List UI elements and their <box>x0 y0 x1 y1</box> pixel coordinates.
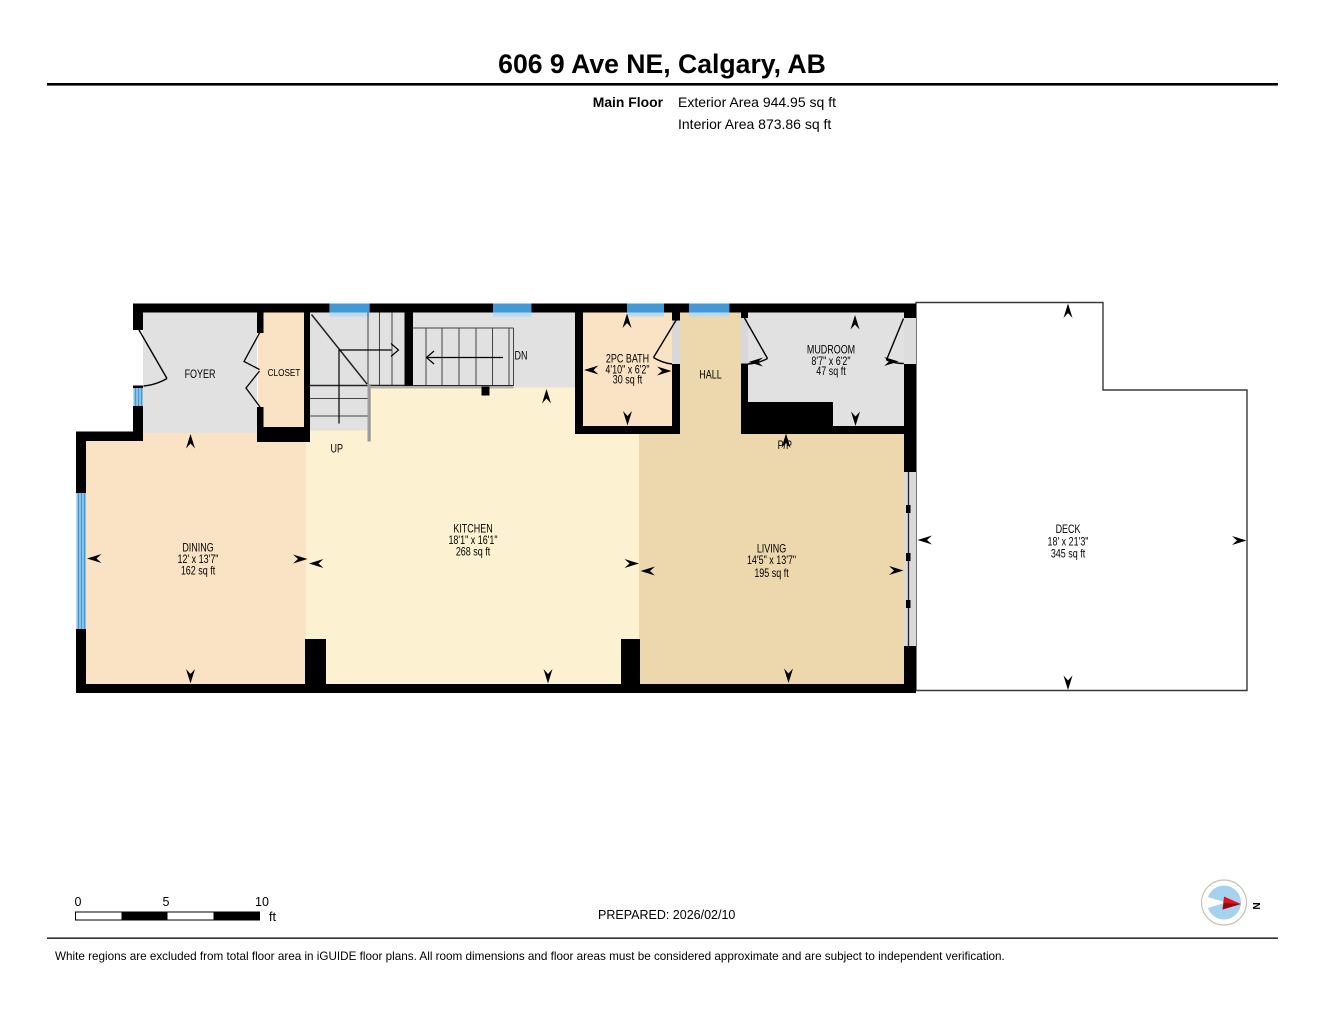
svg-text:0: 0 <box>75 895 82 909</box>
svg-text:268 sq ft: 268 sq ft <box>456 547 490 559</box>
svg-text:Exterior Area 944.95 sq ft: Exterior Area 944.95 sq ft <box>678 94 836 110</box>
svg-text:30 sq ft: 30 sq ft <box>613 375 642 387</box>
svg-text:CLOSET: CLOSET <box>268 366 301 378</box>
svg-text:14'5" x 13'7": 14'5" x 13'7" <box>747 555 796 567</box>
svg-text:18' x 21'3": 18' x 21'3" <box>1048 537 1089 549</box>
svg-text:Interior Area 873.86 sq ft: Interior Area 873.86 sq ft <box>678 116 831 132</box>
svg-text:ft: ft <box>269 910 276 924</box>
svg-text:18'1" x 16'1": 18'1" x 16'1" <box>448 535 497 547</box>
svg-text:5: 5 <box>163 895 170 909</box>
svg-text:Main Floor: Main Floor <box>593 94 664 110</box>
svg-text:12' x 13'7": 12' x 13'7" <box>178 554 219 566</box>
svg-text:162 sq ft: 162 sq ft <box>181 566 215 578</box>
svg-text:47 sq ft: 47 sq ft <box>816 366 845 378</box>
svg-text:PREPARED: 2026/02/10: PREPARED: 2026/02/10 <box>598 908 735 922</box>
svg-text:DINING: DINING <box>182 543 213 555</box>
svg-text:P/P: P/P <box>778 440 793 452</box>
svg-text:KITCHEN: KITCHEN <box>453 524 492 536</box>
svg-text:DN: DN <box>515 351 528 363</box>
svg-text:MUDROOM: MUDROOM <box>807 345 855 357</box>
svg-text:DECK: DECK <box>1056 524 1081 536</box>
svg-text:345 sq ft: 345 sq ft <box>1051 549 1085 561</box>
svg-text:606 9 Ave NE, Calgary, AB: 606 9 Ave NE, Calgary, AB <box>498 49 826 79</box>
svg-text:N: N <box>1250 902 1261 909</box>
svg-text:195 sq ft: 195 sq ft <box>754 568 788 580</box>
svg-text:UP: UP <box>330 444 343 456</box>
svg-text:10: 10 <box>255 895 269 909</box>
svg-text:LIVING: LIVING <box>757 544 786 556</box>
svg-text:White regions are excluded fro: White regions are excluded from total fl… <box>55 950 1005 963</box>
svg-text:HALL: HALL <box>699 370 722 382</box>
svg-text:FOYER: FOYER <box>185 369 216 381</box>
